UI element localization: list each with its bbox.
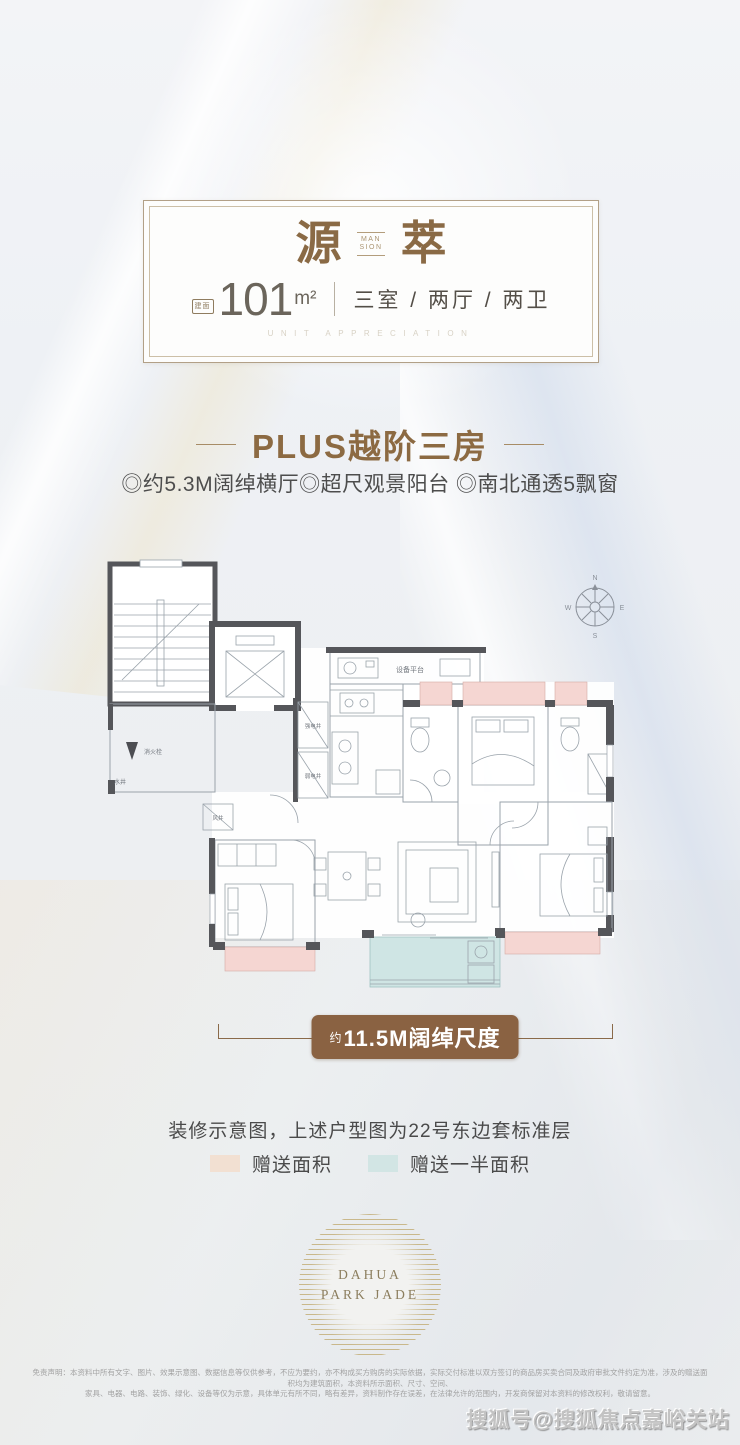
- mansion-word-bottom: SION: [359, 244, 382, 252]
- half-gift-area-label: 赠送一半面积: [410, 1150, 530, 1177]
- stairwell: [110, 560, 215, 704]
- gift-area-swatch: [210, 1155, 240, 1172]
- title-char-left: 源: [295, 221, 341, 267]
- dimension-value: 11.5M阔绰尺度: [344, 1021, 501, 1053]
- fire-hydrant-label: 消火栓: [144, 748, 162, 756]
- section-heading: PLUS越阶三房: [252, 420, 488, 468]
- area-unit: m²: [294, 280, 316, 310]
- gift-area-label: 赠送面积: [252, 1150, 332, 1177]
- water-well-label: 水井: [114, 778, 126, 786]
- compass-south-label: S: [593, 633, 598, 640]
- weak-electric-shaft-label: 弱电井: [305, 772, 322, 780]
- floor-plan-drawing: N E S W: [100, 552, 640, 1012]
- subtitle-english: UNIT APPRECIATION: [144, 329, 598, 338]
- air-shaft-label: 风井: [212, 814, 224, 822]
- disclaimer: 免责声明：本资料中所有文字、图片、效果示意图、数据信息等仅供参考，不应为要约，亦…: [30, 1368, 710, 1400]
- compass-west-label: W: [565, 605, 572, 612]
- title-char-right: 萃: [401, 221, 447, 267]
- compass-icon: N E S W: [565, 575, 625, 640]
- half-gift-area-swatch: [368, 1155, 398, 1172]
- legend-item-half-gift: 赠送一半面积: [368, 1150, 530, 1177]
- section-heading-row: PLUS越阶三房: [0, 420, 740, 468]
- fire-hydrant-icon: [126, 742, 138, 760]
- bay-window-bedroom-1: [213, 942, 320, 971]
- elevator-shaft: [212, 624, 298, 711]
- brand-name-line1: DAHUA: [321, 1265, 419, 1285]
- watermark: 搜狐号@搜狐焦点嘉峪关站: [467, 1404, 730, 1434]
- poster-page: 源 MAN SION 萃 建面 101 m² 三室 / 两厅 / 两卫 UNIT…: [0, 0, 740, 1445]
- area-value: 101: [219, 276, 293, 322]
- brand-name-line2: PARK JADE: [321, 1285, 419, 1305]
- compass-east-label: E: [620, 605, 625, 612]
- dimension-prefix: 约: [330, 1029, 342, 1046]
- area-row: 建面 101 m² 三室 / 两厅 / 两卫: [144, 276, 598, 322]
- balcony: [362, 930, 505, 987]
- built-area-tag-icon: 建面: [192, 299, 214, 314]
- mansion-word-top: MAN: [361, 236, 381, 244]
- vertical-divider: [334, 282, 335, 316]
- heading-dash-left: [196, 444, 236, 445]
- brand-logo: DAHUA PARK JADE: [299, 1214, 441, 1356]
- floor-plan: N E S W: [100, 552, 640, 1012]
- disclaimer-line2: 家具、电器、电路、装饰、绿化、设备等仅为示意，具体单元有所不同，略有差异，资料制…: [30, 1389, 710, 1400]
- unit-title: 源 MAN SION 萃: [144, 221, 598, 267]
- features-line: ◎约5.3M阔绰横厅◎超尺观景阳台 ◎南北通透5飘窗: [0, 468, 740, 498]
- mansion-divider: MAN SION: [357, 232, 384, 256]
- brand-logo-text: DAHUA PARK JADE: [321, 1265, 419, 1305]
- bay-windows-north: [403, 682, 613, 707]
- disclaimer-line1: 免责声明：本资料中所有文字、图片、效果示意图、数据信息等仅供参考，不应为要约，亦…: [30, 1368, 710, 1389]
- rooms-label: 三室 / 两厅 / 两卫: [353, 284, 550, 314]
- bay-window-master: [495, 928, 612, 954]
- heading-dash-right: [504, 444, 544, 445]
- strong-electric-shaft-label: 强电井: [305, 722, 322, 730]
- equipment-platform-label: 设备平台: [396, 665, 424, 674]
- unit-header-card: 源 MAN SION 萃 建面 101 m² 三室 / 两厅 / 两卫 UNIT…: [143, 200, 599, 363]
- legend-item-gift: 赠送面积: [210, 1150, 332, 1177]
- plan-caption: 装修示意图，上述户型图为22号东边套标准层: [0, 1116, 740, 1143]
- legend: 赠送面积 赠送一半面积: [0, 1150, 740, 1177]
- compass-north-label: N: [592, 575, 597, 582]
- dimension-badge: 约 11.5M阔绰尺度: [312, 1015, 519, 1059]
- entry-hall: 消火栓 水井: [108, 704, 215, 794]
